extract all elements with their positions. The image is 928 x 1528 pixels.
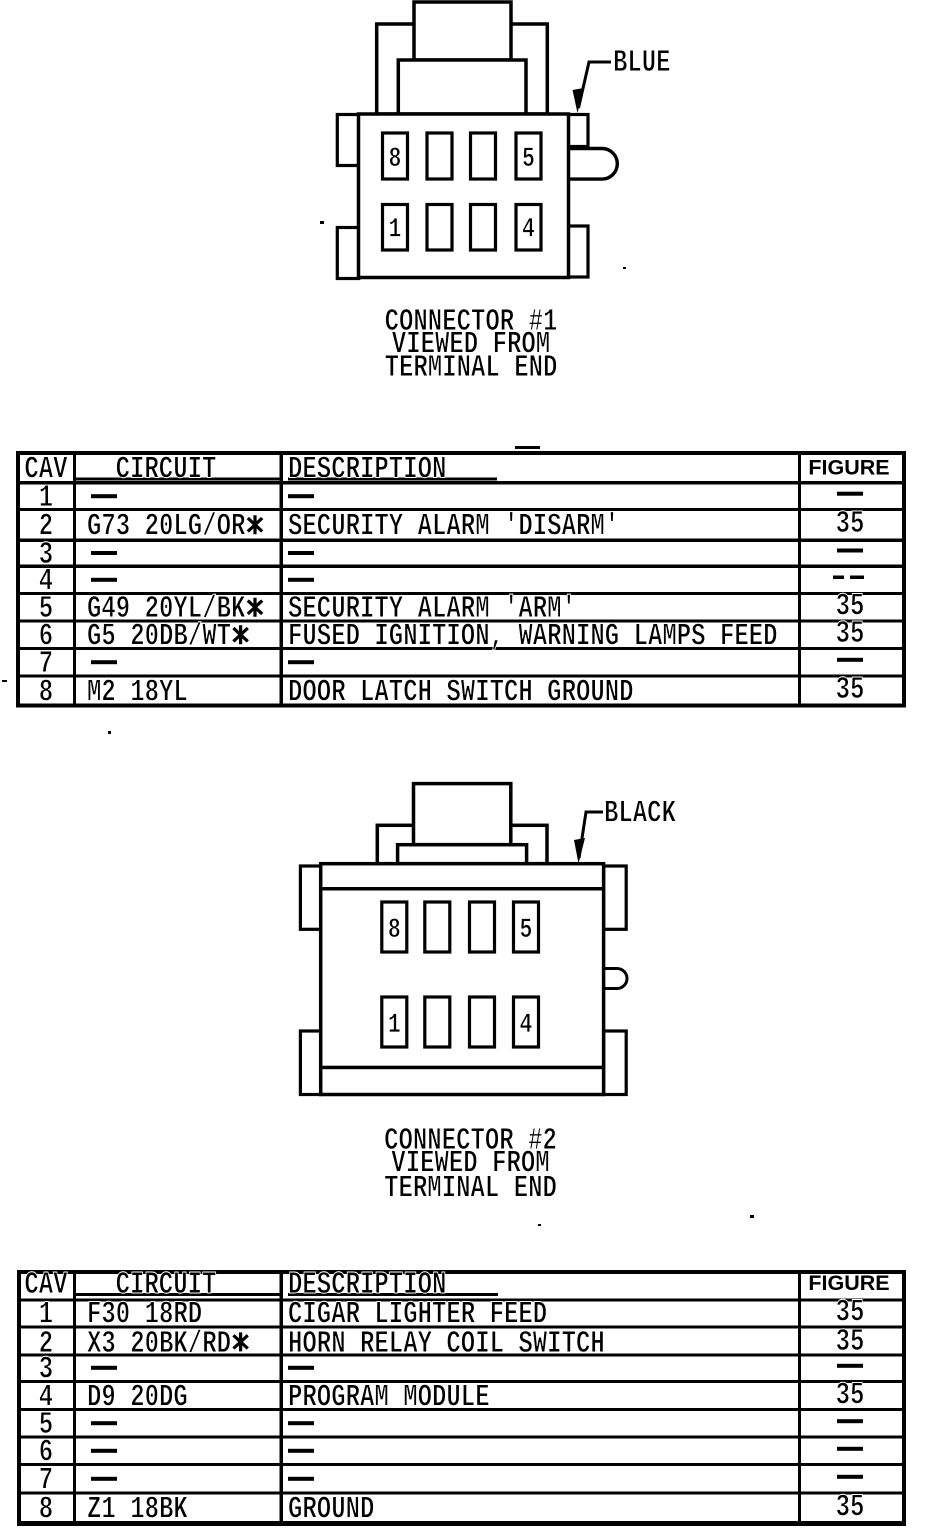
svg-text:BLUE: BLUE (613, 46, 671, 81)
svg-text:FIGURE: FIGURE (808, 1271, 889, 1295)
svg-text:FUSED IGNITION, WARNING LAMPS: FUSED IGNITION, WARNING LAMPS FEED (288, 620, 778, 655)
svg-text:35: 35 (836, 507, 865, 542)
svg-text:4: 4 (520, 1009, 533, 1040)
svg-text:35: 35 (836, 1491, 865, 1526)
svg-text:35: 35 (836, 1379, 865, 1414)
svg-text:8: 8 (388, 914, 401, 945)
svg-text:1: 1 (388, 1009, 401, 1040)
svg-text:M2 18YL: M2 18YL (87, 676, 188, 711)
svg-text:X3 20BK/RD: X3 20BK/RD (87, 1327, 231, 1362)
svg-text:HORN RELAY COIL SWITCH: HORN RELAY COIL SWITCH (288, 1327, 605, 1362)
svg-text:D9 20DG: D9 20DG (87, 1381, 188, 1416)
svg-text:FIGURE: FIGURE (808, 456, 889, 480)
svg-text:5: 5 (520, 914, 533, 945)
svg-text:G73 20LG/OR: G73 20LG/OR (87, 510, 246, 545)
svg-text:TERMINAL END: TERMINAL END (385, 351, 558, 386)
svg-text:5: 5 (522, 143, 535, 174)
svg-text:G5 20DB/WT: G5 20DB/WT (87, 620, 231, 655)
svg-text:DESCRIPTION: DESCRIPTION (288, 453, 446, 488)
svg-text:CIRCUIT: CIRCUIT (116, 453, 217, 488)
svg-text:35: 35 (836, 617, 865, 652)
svg-text:TERMINAL END: TERMINAL END (384, 1172, 557, 1207)
svg-text:35: 35 (836, 673, 865, 708)
svg-text:8: 8 (389, 143, 402, 174)
svg-text:BLACK: BLACK (604, 797, 676, 832)
svg-text:PROGRAM MODULE: PROGRAM MODULE (288, 1381, 490, 1416)
svg-text:35: 35 (836, 1325, 865, 1360)
svg-text:Z1 18BK: Z1 18BK (87, 1493, 188, 1528)
svg-text:DOOR LATCH SWITCH GROUND: DOOR LATCH SWITCH GROUND (288, 676, 634, 711)
svg-text:8: 8 (39, 1493, 53, 1528)
svg-text:4: 4 (522, 214, 535, 245)
svg-text:SECURITY ALARM 'DISARM': SECURITY ALARM 'DISARM' (288, 510, 619, 545)
svg-text:1: 1 (389, 214, 402, 245)
svg-text:GROUND: GROUND (288, 1493, 374, 1528)
svg-text:8: 8 (39, 676, 53, 711)
